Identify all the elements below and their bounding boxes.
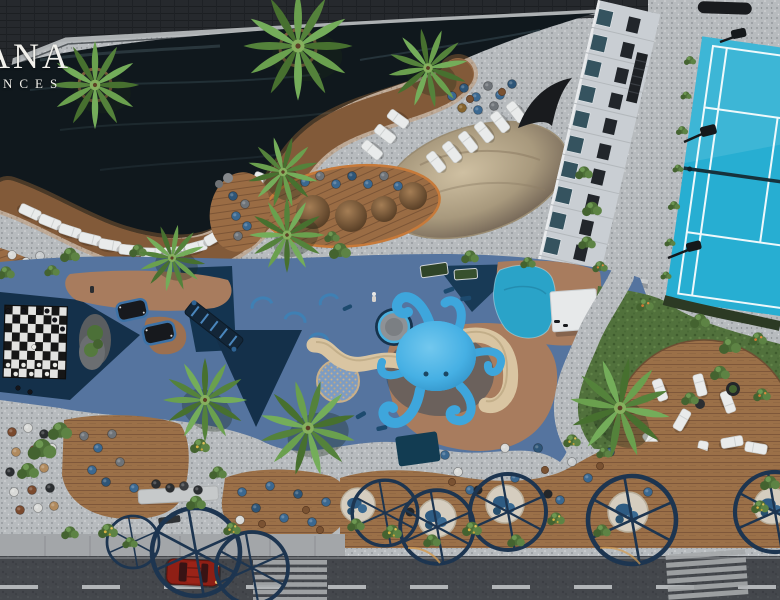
- brand-logo: ANA ENCES: [0, 38, 71, 90]
- pouf: [94, 444, 103, 453]
- octopus-eye: [424, 372, 429, 377]
- side-table: [258, 520, 265, 527]
- pouf: [322, 498, 331, 507]
- pouf: [316, 172, 325, 181]
- pouf: [454, 468, 463, 477]
- side-table: [466, 95, 473, 102]
- rock: [215, 180, 223, 188]
- pouf: [34, 504, 43, 513]
- aerial-render: ANA ENCES: [0, 0, 780, 600]
- pouf: [130, 484, 139, 493]
- pouf: [166, 484, 175, 493]
- pouf: [280, 514, 289, 523]
- brand-logo-line1: ANA: [0, 38, 71, 74]
- pouf: [490, 102, 499, 111]
- pouf: [266, 482, 275, 491]
- side-table: [541, 466, 548, 473]
- pouf: [441, 451, 450, 460]
- pouf: [294, 490, 303, 499]
- pouf: [474, 106, 483, 115]
- pouf: [180, 482, 189, 491]
- pouf: [458, 104, 467, 113]
- pouf: [236, 516, 245, 525]
- rock: [223, 173, 233, 183]
- sidewalk: [0, 534, 345, 558]
- side-table: [448, 478, 455, 485]
- pouf: [534, 444, 543, 453]
- side-table: [302, 506, 309, 513]
- pouf: [460, 84, 469, 93]
- pouf: [568, 458, 577, 467]
- pouf: [12, 448, 21, 457]
- pouf: [6, 468, 15, 477]
- pouf: [556, 496, 565, 505]
- pouf: [229, 192, 238, 201]
- pouf: [394, 182, 403, 191]
- pouf: [238, 488, 247, 497]
- thatch-dome: [399, 182, 427, 210]
- side-table: [596, 462, 603, 469]
- pouf: [40, 430, 49, 439]
- pouf: [364, 180, 373, 189]
- pouf: [380, 172, 389, 181]
- pouf: [308, 518, 317, 527]
- pouf: [28, 486, 37, 495]
- pouf: [40, 464, 49, 473]
- thatch-dome: [371, 196, 397, 222]
- pouf: [80, 432, 89, 441]
- pouf: [116, 458, 125, 467]
- pouf: [10, 488, 19, 497]
- navy-mat: [395, 431, 441, 467]
- pouf: [24, 424, 33, 433]
- pouf: [243, 222, 252, 231]
- pouf: [508, 80, 517, 89]
- pouf: [644, 488, 653, 497]
- roof-tank: [698, 1, 752, 15]
- pouf: [584, 474, 593, 483]
- pouf: [88, 466, 97, 475]
- pouf: [234, 232, 243, 241]
- pouf: [332, 180, 341, 189]
- scene-canvas: [0, 0, 780, 600]
- pouf: [194, 486, 203, 495]
- pouf: [8, 428, 17, 437]
- side-table: [316, 526, 323, 533]
- pouf: [241, 200, 250, 209]
- pouf: [348, 172, 357, 181]
- pouf: [108, 430, 117, 439]
- pouf: [16, 506, 25, 515]
- octopus-eye: [444, 372, 449, 377]
- pouf: [232, 212, 241, 221]
- pouf: [501, 444, 510, 453]
- pouf: [50, 502, 59, 511]
- pouf: [152, 480, 161, 489]
- pouf: [252, 504, 261, 513]
- brand-logo-line2: ENCES: [0, 77, 71, 90]
- side-table: [498, 88, 505, 95]
- thatch-dome: [335, 200, 367, 232]
- pouf: [102, 478, 111, 487]
- pouf: [8, 251, 17, 260]
- pouf: [46, 484, 55, 493]
- pouf: [484, 82, 493, 91]
